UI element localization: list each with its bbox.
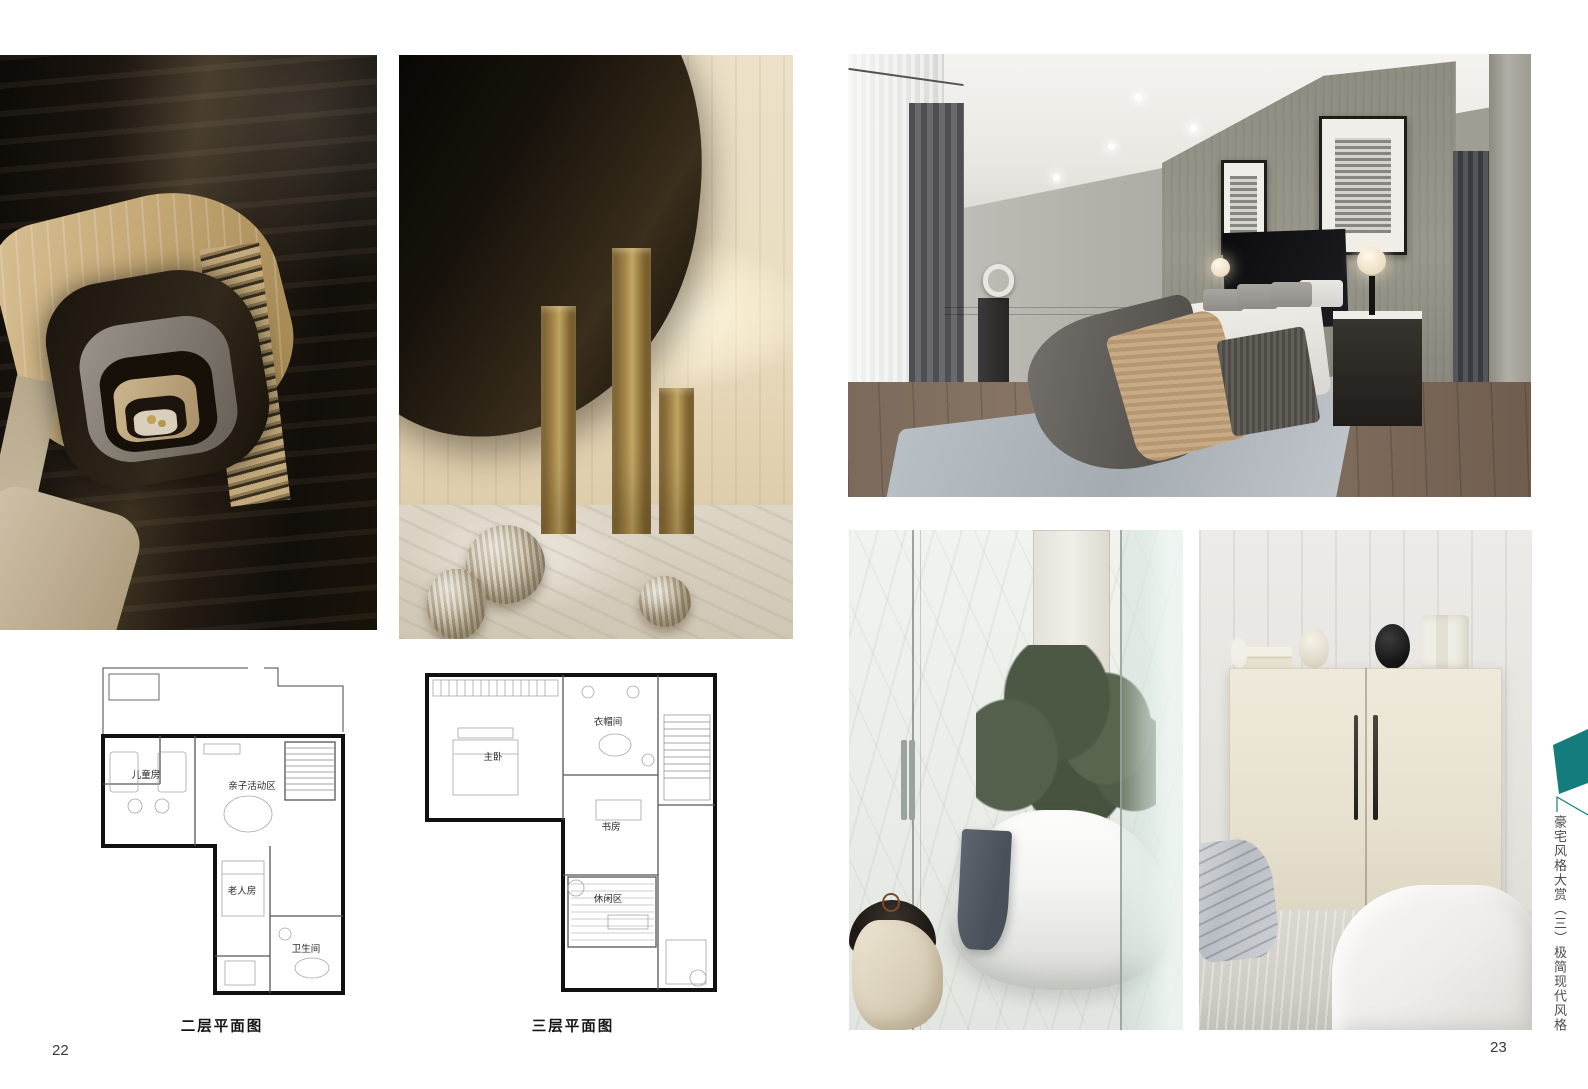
shower-door-handle bbox=[901, 740, 907, 820]
book-spread: 儿童房 亲子活动区 老人房 卫生间 二层平面图 bbox=[0, 0, 1588, 1089]
lamp-stem bbox=[1369, 276, 1375, 316]
cabinet-door-gap bbox=[1365, 668, 1367, 913]
room-label: 休闲区 bbox=[594, 893, 623, 905]
room-label: 老人房 bbox=[228, 885, 257, 897]
bedside-lamp-right bbox=[1357, 247, 1386, 275]
page-number-right: 23 bbox=[1490, 1039, 1507, 1056]
sculpture-pedestal bbox=[978, 298, 1009, 387]
photo-bathroom bbox=[849, 530, 1183, 1030]
room-label: 书房 bbox=[601, 821, 620, 833]
flag-solid bbox=[1553, 729, 1588, 794]
bed-pillow bbox=[1271, 282, 1312, 306]
ceiling-spotlight bbox=[1135, 94, 1142, 101]
deck-boards bbox=[571, 884, 654, 940]
basket-handle bbox=[882, 893, 899, 912]
wardrobe-hatch bbox=[433, 680, 558, 696]
ring-sculpture bbox=[983, 264, 1015, 296]
furniture-hints bbox=[453, 686, 706, 986]
room-label: 卫生间 bbox=[292, 943, 321, 955]
plan-caption-level2: 二层平面图 bbox=[122, 1015, 322, 1036]
photo-bedroom bbox=[848, 54, 1531, 497]
stairwell-bottom-floor bbox=[133, 409, 178, 437]
black-round-vase bbox=[1375, 624, 1410, 669]
plan-caption-level3: 三层平面图 bbox=[473, 1015, 673, 1036]
room-label: 儿童房 bbox=[132, 769, 161, 781]
room-label: 衣帽间 bbox=[594, 716, 623, 728]
series-title: 豪宅风格大赏 bbox=[1551, 815, 1566, 902]
room-label: 亲子活动区 bbox=[228, 780, 276, 792]
photo-stairwell-overhead bbox=[0, 55, 377, 630]
artwork-print bbox=[1335, 138, 1391, 234]
stair-steps bbox=[664, 715, 710, 800]
ribbed-sphere-egg bbox=[427, 569, 486, 639]
cabinet-handle-left bbox=[1354, 715, 1358, 820]
chapter-flag bbox=[1549, 727, 1588, 819]
stacked-books bbox=[1242, 647, 1292, 668]
floor-plan-level3: 主卧 衣帽间 书房 休闲区 bbox=[408, 660, 724, 1006]
dark-ribbed-quilt bbox=[1216, 326, 1320, 437]
ceiling-spotlight bbox=[1053, 174, 1060, 181]
brass-column-left bbox=[541, 306, 576, 534]
shower-door-handle bbox=[909, 740, 915, 820]
artwork-print bbox=[1230, 176, 1257, 240]
chapter-sidebar-text: 豪宅风格大赏（三）极简现代风格 bbox=[1543, 815, 1573, 1037]
chapter-title: 极简现代风格 bbox=[1551, 946, 1566, 1033]
terrace-outline bbox=[103, 668, 343, 734]
brass-column-tall bbox=[612, 248, 651, 534]
floor-plan-level2: 儿童房 亲子活动区 老人房 卫生间 bbox=[100, 656, 345, 1002]
photo-stair-brass-columns bbox=[399, 55, 793, 639]
page-number-left: 22 bbox=[52, 1042, 69, 1059]
room-label: 主卧 bbox=[483, 751, 503, 763]
stair-steps bbox=[285, 748, 335, 790]
ribbed-sphere-small bbox=[639, 576, 690, 627]
photo-wardrobe-bedroom bbox=[1199, 530, 1532, 1030]
white-vase-group bbox=[1422, 615, 1469, 669]
stairwell-chair-dot bbox=[158, 420, 166, 427]
volume-marker: （三） bbox=[1551, 902, 1566, 946]
glass-panel-right bbox=[1120, 530, 1183, 1030]
cabinet-handle-right bbox=[1373, 715, 1377, 820]
stairwell-table-dot bbox=[147, 415, 156, 424]
flag-fold-outline bbox=[1557, 797, 1588, 815]
ceiling-spotlight bbox=[1190, 125, 1197, 132]
brass-column-short bbox=[659, 388, 694, 534]
white-jar bbox=[1299, 628, 1329, 668]
ceiling-spotlight bbox=[1108, 143, 1115, 150]
nightstand bbox=[1333, 311, 1422, 426]
cream-blanket bbox=[852, 920, 942, 1030]
